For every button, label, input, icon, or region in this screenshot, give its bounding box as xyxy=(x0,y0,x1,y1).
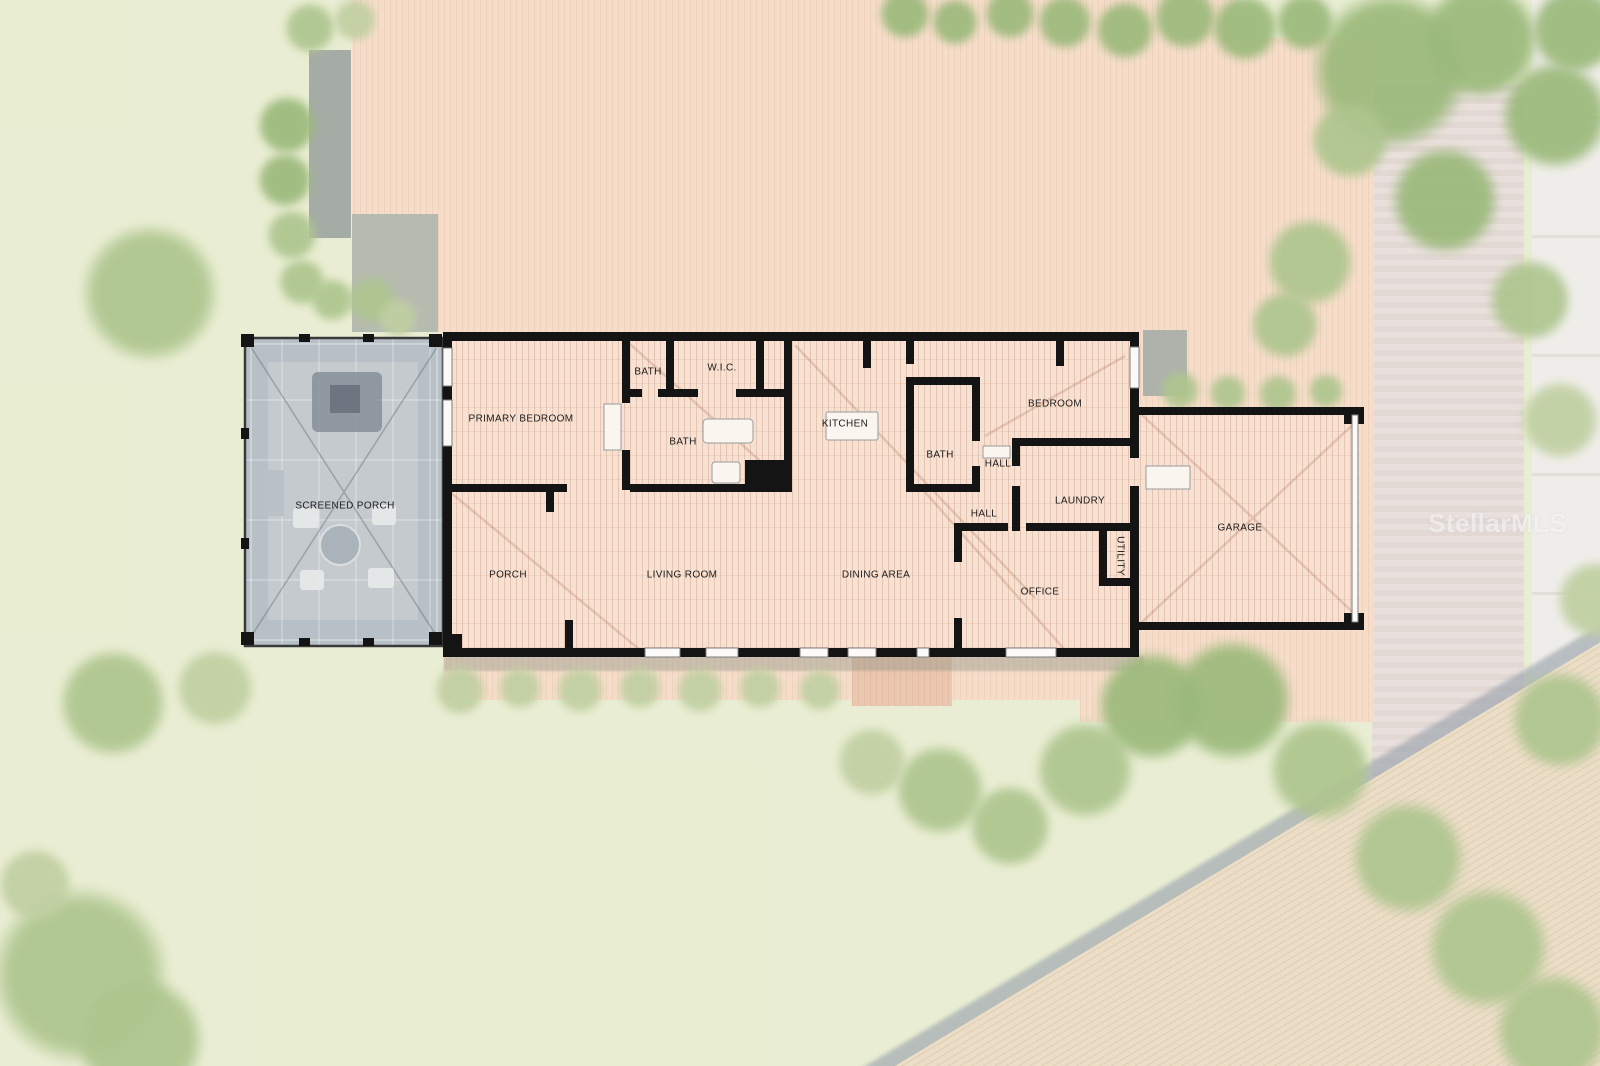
garage-stoop xyxy=(1146,466,1190,489)
room-label-screened-porch: SCREENED PORCH xyxy=(295,501,394,512)
room-label-bath-3: BATH xyxy=(926,450,953,461)
room-label-office: OFFICE xyxy=(1021,587,1060,598)
shower xyxy=(745,460,790,486)
room-label-bath-1: BATH xyxy=(634,367,661,378)
toilet xyxy=(712,462,740,483)
room-label-wic: W.I.C. xyxy=(707,363,736,374)
screened-porch-enclosure xyxy=(241,334,443,646)
room-label-primary-bedroom: PRIMARY BEDROOM xyxy=(469,414,574,425)
door-leaf xyxy=(604,404,621,450)
door-leaf xyxy=(983,446,1010,458)
room-label-bedroom: BEDROOM xyxy=(1028,399,1082,410)
room-label-bath-2: BATH xyxy=(669,437,696,448)
room-label-living-room: LIVING ROOM xyxy=(647,570,718,581)
room-label-utility: UTILITY xyxy=(1114,536,1125,576)
room-floors xyxy=(447,336,1360,654)
room-label-laundry: LAUNDRY xyxy=(1055,496,1105,507)
floor-plan-overlay: SCREENED PORCHPRIMARY BEDROOMBATHW.I.C.B… xyxy=(0,0,1600,1066)
room-label-hall-1: HALL xyxy=(985,459,1012,470)
room-label-porch: PORCH xyxy=(489,570,527,581)
stellar-mls-watermark: StellarMLS xyxy=(1428,508,1598,539)
room-label-kitchen: KITCHEN xyxy=(822,419,868,430)
bathtub xyxy=(703,419,753,443)
room-label-garage: GARAGE xyxy=(1218,523,1263,534)
room-label-dining-area: DINING AREA xyxy=(842,570,910,581)
room-label-hall-2: HALL xyxy=(971,509,998,520)
aerial-floor-plan-image: SCREENED PORCHPRIMARY BEDROOMBATHW.I.C.B… xyxy=(0,0,1600,1066)
